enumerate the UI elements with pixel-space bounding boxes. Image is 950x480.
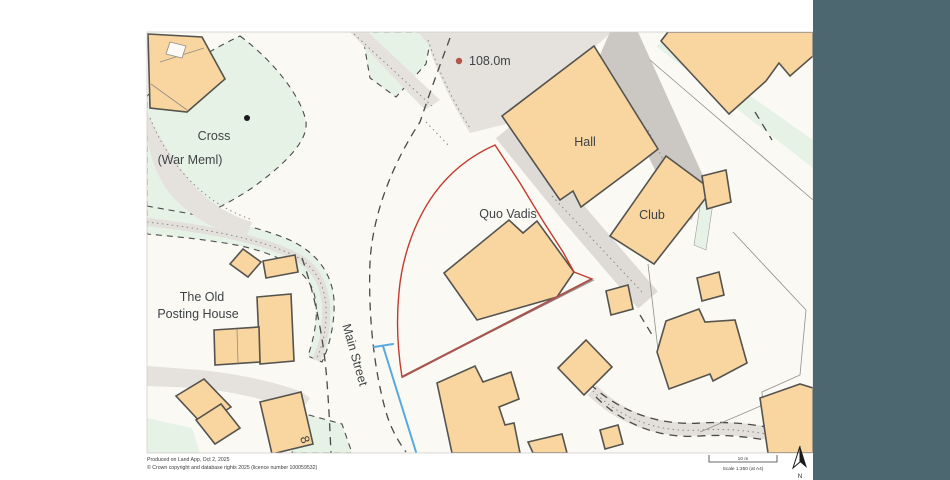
scale-bar-ratio: Scale 1:350 (at A4): [723, 466, 764, 472]
building-south-small2: [600, 425, 623, 449]
war-memorial-dot: [244, 115, 250, 121]
building-posting-main: [257, 294, 294, 364]
label-hall: Hall: [574, 135, 596, 149]
building-club-annex: [702, 170, 731, 209]
scale-bar-distance: 10 m: [738, 456, 749, 462]
attribution-produced: Produced on Land App, Oct 2, 2025: [147, 457, 230, 463]
label-cross: Cross: [198, 129, 231, 143]
attribution-copyright: © Crown copyright and database rights 20…: [147, 464, 317, 471]
map-canvas: 108.0m Hall Club Quo Vadis Cross (War Me…: [0, 0, 950, 480]
right-panel: [813, 0, 950, 480]
label-old-posting-1: The Old: [180, 290, 225, 304]
label-club: Club: [639, 208, 665, 222]
label-spot-height: 108.0m: [469, 54, 511, 68]
label-quo-vadis: Quo Vadis: [479, 207, 536, 221]
spot-height-dot: [456, 58, 462, 64]
label-old-posting-2: Posting House: [157, 307, 238, 321]
building-small-east1: [606, 285, 633, 315]
map-export-page: 108.0m Hall Club Quo Vadis Cross (War Me…: [0, 0, 950, 480]
label-war-meml: (War Meml): [158, 153, 223, 167]
north-arrow-label: N: [798, 473, 803, 480]
building-small-east2: [697, 272, 724, 301]
